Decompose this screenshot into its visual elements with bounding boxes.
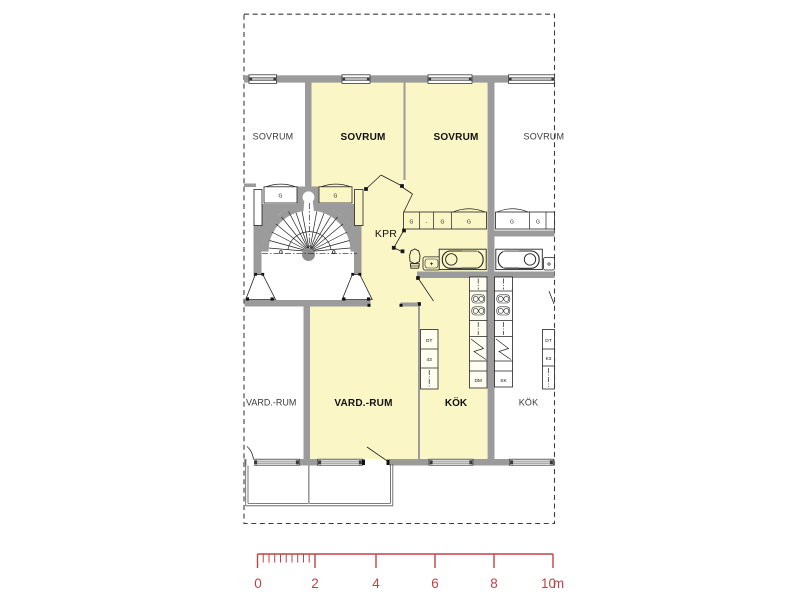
svg-text:G: G xyxy=(410,220,414,226)
svg-text:KPR: KPR xyxy=(375,228,397,240)
svg-text:DM: DM xyxy=(474,378,481,384)
svg-text:G: G xyxy=(441,220,445,226)
svg-text:0: 0 xyxy=(254,576,262,591)
svg-text:SK: SK xyxy=(500,378,507,384)
svg-text:8: 8 xyxy=(490,576,498,591)
svg-text:4: 4 xyxy=(372,576,380,591)
svg-text:G: G xyxy=(510,220,514,226)
svg-text:VARD.-RUM: VARD.-RUM xyxy=(246,398,296,408)
svg-text:G: G xyxy=(334,194,338,200)
svg-text:43: 43 xyxy=(427,357,433,363)
svg-text:SOVRUM: SOVRUM xyxy=(524,132,565,142)
svg-text:G: G xyxy=(279,194,283,200)
svg-text:2: 2 xyxy=(311,576,319,591)
svg-text:DT: DT xyxy=(426,338,432,344)
svg-text:DT: DT xyxy=(545,338,551,344)
svg-text:K3: K3 xyxy=(546,356,552,362)
svg-text:KÖK: KÖK xyxy=(519,398,539,408)
svg-text:SOVRUM: SOVRUM xyxy=(433,132,478,143)
svg-text:G: G xyxy=(467,220,471,226)
svg-text:SOVRUM: SOVRUM xyxy=(253,132,294,142)
svg-text:VARD.-RUM: VARD.-RUM xyxy=(334,398,392,409)
svg-text:m: m xyxy=(553,576,564,591)
svg-text:G: G xyxy=(536,220,540,226)
svg-text:KÖK: KÖK xyxy=(445,396,468,409)
svg-text:SOVRUM: SOVRUM xyxy=(340,132,385,143)
svg-text:6: 6 xyxy=(431,576,439,591)
